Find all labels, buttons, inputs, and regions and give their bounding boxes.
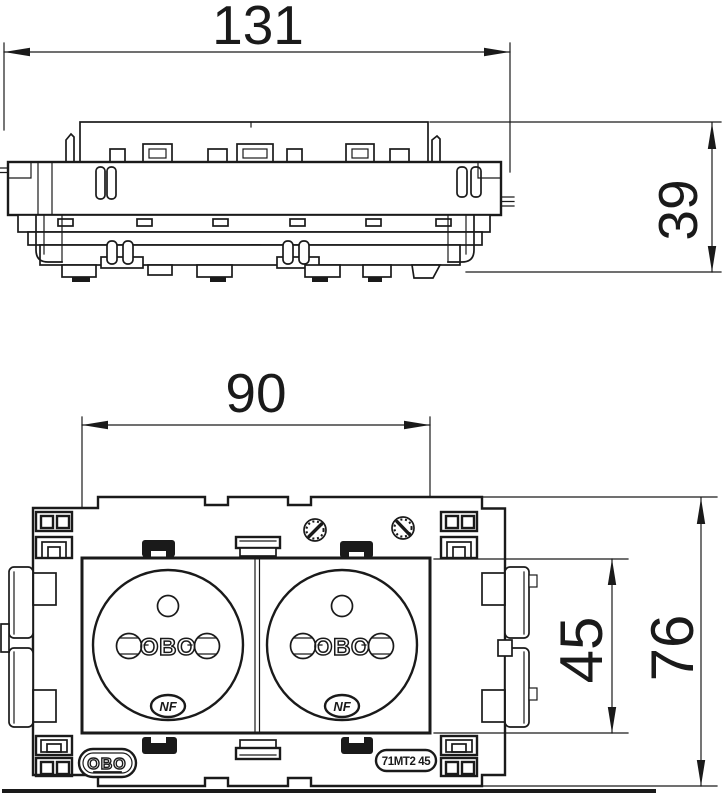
socket-module-drawing: 131 (0, 0, 722, 794)
dim-label-39: 39 (647, 179, 709, 240)
socket-emboss-right: OBO (314, 634, 370, 661)
svg-text:NF: NF (159, 699, 177, 714)
side-view-body (0, 122, 514, 282)
type-label: 71MT2 45 (376, 750, 436, 771)
dim-label-45: 45 (548, 617, 615, 684)
main-band (8, 162, 501, 215)
dim-label-131: 131 (212, 0, 304, 56)
svg-text:71MT2 45: 71MT2 45 (382, 756, 432, 768)
socket-insert-frame (82, 558, 430, 733)
svg-text:NF: NF (333, 699, 351, 714)
mid-rail (18, 215, 490, 232)
dim-label-90: 90 (225, 362, 286, 424)
svg-text:OBO: OBO (87, 756, 126, 773)
side-view: 131 (0, 0, 721, 282)
technical-drawing-page: 131 (0, 0, 722, 794)
front-view: 90 (1, 362, 717, 791)
brand-label: OBO (79, 749, 136, 777)
dim-label-76: 76 (639, 615, 706, 682)
socket-emboss-left: OBO (140, 634, 196, 661)
